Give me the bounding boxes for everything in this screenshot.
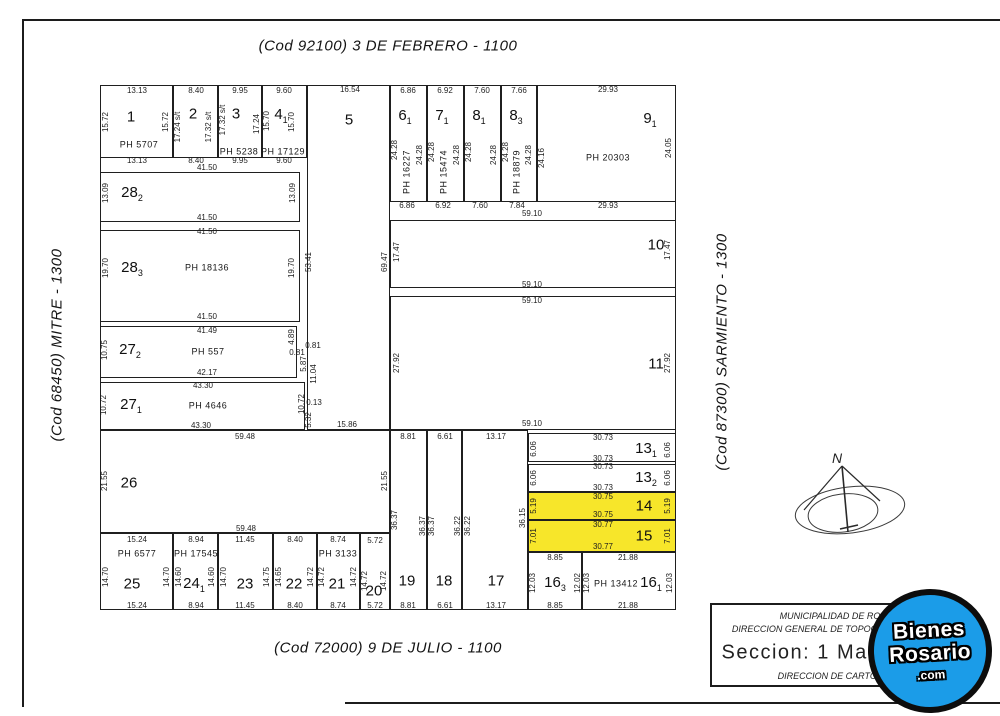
dim-label: 13.17 [486,433,506,441]
parcel-number: 83 [509,108,522,126]
dim-label: 9.95 [232,87,248,95]
dim-label: 11.04 [310,364,318,383]
dim-label: 7.01 [530,528,538,544]
parcel-number: 81 [472,108,485,126]
dim-label: 30.73 [593,484,613,492]
dim-label: 8.85 [547,554,563,562]
title-block-line1: MUNICIPALIDAD DE RO [780,611,881,621]
dim-label: 6.06 [664,470,672,486]
dim-label: 10.75 [101,340,109,360]
street-label-right: (Cod 87300) SARMIENTO - 1300 [714,233,731,470]
parcel-number: 22 [286,577,303,592]
svg-text:N: N [832,450,843,466]
dim-label: 13.17 [486,602,506,610]
dim-label: 36.37 [428,516,436,536]
dim-label: 7.01 [664,528,672,544]
logo-word-2: Rosario [889,640,972,666]
dim-label: 21.88 [618,602,638,610]
parcel-10 [390,220,676,288]
dim-label: 8.40 [188,87,204,95]
dim-label: 59.48 [235,433,255,441]
ph-label: PH 16227 [403,150,412,194]
parcel-number: 2 [189,107,197,122]
dim-label: 8.81 [400,433,416,441]
dim-label: 7.66 [511,87,527,95]
ph-label: PH 13412 [594,580,638,589]
parcel-number: 26 [121,476,138,491]
dim-label: 30.75 [593,493,613,501]
dim-label: 0.81 [305,342,321,350]
parcel-number: 10 [648,238,665,253]
dim-label: 36.22 [454,516,462,536]
dim-label: 14.70 [220,567,228,587]
dim-label: 69.47 [381,252,389,272]
dim-label: 5.32 [305,412,313,428]
dim-label: 17.32 s/t [205,112,213,143]
dim-label: 43.30 [193,382,213,390]
dim-label: 14.72 [318,567,326,587]
dim-label: 0.13 [306,399,322,407]
parcel-number: 21 [329,577,346,592]
dim-label: 14.60 [208,567,216,587]
dim-label: 24.28 [490,145,498,165]
dim-label: 24.28 [391,140,399,160]
dim-label: 27.92 [393,353,401,373]
dim-label: 17.32 s/t [219,105,227,136]
dim-label: 7.60 [472,202,488,210]
dim-label: 21.55 [381,471,389,491]
dim-label: 17.47 [664,240,672,260]
street-label-top: (Cod 92100) 3 DE FEBRERO - 1100 [259,38,518,55]
dim-label: 6.06 [530,441,538,457]
parcel-number: 19 [399,574,416,589]
ph-label: PH 18136 [185,264,229,273]
dim-label: 11.45 [235,536,254,544]
parcel-11 [390,296,676,430]
dim-label: 5.19 [664,498,672,514]
dim-label: 19.70 [102,258,110,278]
dim-label: 15.70 [263,111,271,131]
dim-label: 17.47 [393,242,401,262]
dim-label: 15.24 [127,536,147,544]
dim-label: 19.70 [288,258,296,278]
dim-label: 12.03 [529,573,537,593]
dim-label: 24.28 [428,142,436,162]
ph-label: PH 5707 [120,141,159,150]
parcel-number: 163 [544,575,566,593]
dim-label: 59.10 [522,281,542,289]
dim-label: 24.05 [665,138,673,158]
dim-label: 14.60 [175,567,183,587]
dim-label: 15.72 [102,112,110,132]
cadastral-plan-page: { "colors": { "highlight_yellow": "#f7e6… [0,0,1000,707]
dim-label: 29.93 [598,86,618,94]
dim-label: 6.86 [399,202,415,210]
dim-label: 59.48 [236,525,256,533]
dim-label: 43.30 [191,422,211,430]
dim-label: 15.72 [162,112,170,132]
dim-label: 30.73 [593,434,613,442]
dim-label: 9.95 [232,157,248,165]
dim-label: 14.70 [163,567,171,587]
dim-label: 12.03 [583,573,591,593]
dim-label: 14.65 [275,567,283,587]
north-compass-icon: N [790,448,910,543]
parcel-number: 25 [124,577,141,592]
dim-label: 6.86 [400,87,416,95]
dim-label: 24.28 [525,145,533,165]
dim-label: 13.13 [127,87,147,95]
dim-label: 30.77 [593,521,613,529]
ph-label: PH 20303 [586,154,630,163]
dim-label: 12.02 [574,573,582,593]
parcel-number: 271 [120,397,142,415]
dim-label: 6.92 [437,87,453,95]
parcel-number: 11 [648,357,664,372]
parcel-number: 23 [237,577,254,592]
parcel-number: 5 [345,113,353,128]
dim-label: 12.03 [666,573,674,593]
dim-label: 30.73 [593,463,613,471]
dim-label: 24.28 [453,145,461,165]
dim-label: 41.50 [197,228,217,236]
street-label-bottom: (Cod 72000) 9 DE JULIO - 1100 [274,640,502,657]
dim-label: 13.09 [289,183,297,203]
dim-label: 41.50 [197,164,217,172]
parcel-number: 17 [488,574,505,589]
dim-label: 14.72 [307,567,315,587]
street-label-left: (Cod 68450) MITRE - 1300 [49,249,66,442]
ph-label: PH 557 [191,348,224,357]
dim-label: 53.41 [305,252,313,272]
dim-label: 10.72 [100,395,108,415]
dim-label: 6.61 [437,433,453,441]
dim-label: 24.28 [416,145,424,165]
parcel-number: 131 [635,441,657,459]
dim-label: 30.75 [593,511,613,519]
dim-label: 13.13 [127,157,147,165]
dim-label: 36.37 [419,516,427,536]
dim-label: 9.60 [276,87,292,95]
dim-label: 5.19 [530,498,538,514]
dim-label: 15.70 [288,112,296,132]
dim-label: 17.24 [253,114,261,134]
dim-label: 59.10 [522,420,542,428]
parcel-number: 18 [436,574,453,589]
dim-label: 36.15 [519,508,527,528]
dim-label: 14.72 [350,567,358,587]
dim-label: 5.87 [300,356,308,372]
parcel-number: 1 [127,110,135,125]
parcel-number: 132 [635,470,657,488]
dim-label: 11.45 [235,602,254,610]
dim-label: 8.94 [188,602,204,610]
parcel-number: 14 [636,499,653,514]
dim-label: 36.37 [391,510,399,530]
dim-label: 8.74 [330,602,346,610]
ph-label: PH 18879 [513,150,522,194]
parcel-number: 3 [232,107,240,122]
parcel-number: 272 [119,342,141,360]
dim-label: 41.50 [197,313,217,321]
dim-label: 24.16 [538,148,546,168]
dim-label: 4.89 [288,329,296,345]
dim-label: 24.28 [502,142,510,162]
dim-label: 6.92 [435,202,451,210]
parcel-number: 41 [274,107,287,125]
dim-label: 14.70 [102,567,110,587]
dim-label: 7.60 [474,87,490,95]
dim-label: 8.81 [400,602,416,610]
dim-label: 30.77 [593,543,613,551]
dim-label: 9.60 [276,157,292,165]
dim-label: 14.72 [361,571,369,591]
dim-label: 24.28 [465,142,473,162]
dim-label: 14.75 [263,567,271,587]
parcel-number: 15 [636,529,653,544]
ph-label: PH 17545 [174,550,218,559]
dim-label: 5.72 [367,602,383,610]
dim-label: 8.40 [287,536,303,544]
dim-label: 21.88 [618,554,638,562]
parcel-number: 61 [398,108,411,126]
dim-label: 8.85 [547,602,563,610]
logo-word-3: .com [917,667,946,682]
parcel-5 [307,85,390,430]
ph-label: PH 6577 [118,550,157,559]
dim-label: 5.72 [367,537,383,545]
dim-label: 36.22 [464,516,472,536]
parcel-number: 282 [121,185,143,203]
dim-label: 15.86 [337,421,357,429]
dim-label: 59.10 [522,210,542,218]
dim-label: 41.50 [197,214,217,222]
dim-label: 59.10 [522,297,542,305]
dim-label: 6.61 [437,602,453,610]
dim-label: 29.93 [598,202,618,210]
page-border-top [22,19,1000,21]
dim-label: 8.94 [188,536,204,544]
parcel-26 [100,430,390,533]
page-border-left [22,19,24,707]
dim-label: 13.09 [102,183,110,203]
dim-label: 21.55 [101,471,109,491]
title-block-line2: DIRECCION GENERAL DE TOPOGR [732,624,884,634]
dim-label: 16.54 [340,86,360,94]
dim-label: 8.40 [287,602,303,610]
dim-label: 41.49 [197,327,217,335]
parcel-number: 161 [640,575,662,593]
dim-label: 6.06 [664,442,672,458]
dim-label: 17.24 s/t [174,112,182,143]
dim-label: 27.92 [664,353,672,373]
dim-label: 14.72 [380,571,388,591]
dim-label: 15.24 [127,602,147,610]
dim-label: 6.06 [530,470,538,486]
dim-label: 42.17 [197,369,217,377]
parcel-number: 283 [121,260,143,278]
ph-label: PH 4646 [189,402,228,411]
parcel-9-1 [537,85,676,202]
ph-label: PH 15474 [440,150,449,194]
parcel-number: 91 [643,111,656,129]
parcel-number: 71 [435,108,448,126]
parcel-number: 241 [183,576,205,594]
dim-label: 8.74 [330,536,346,544]
ph-label: PH 3133 [319,550,358,559]
